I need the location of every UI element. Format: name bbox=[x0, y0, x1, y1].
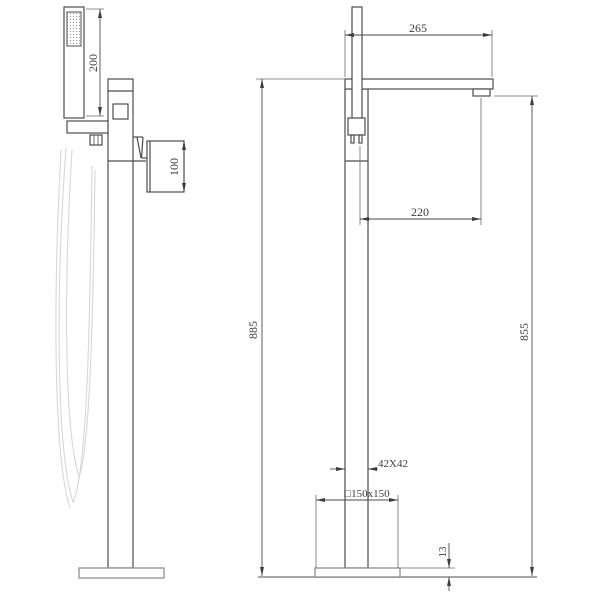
handle-mount-notch-right bbox=[142, 137, 144, 158]
spout-outlet bbox=[473, 89, 490, 96]
base-plate-front bbox=[79, 568, 164, 578]
hose-outer-loop bbox=[59, 148, 92, 502]
dim-shower-length: 200 bbox=[86, 9, 104, 116]
spray-face bbox=[67, 12, 81, 46]
front-view: 200 100 bbox=[56, 7, 184, 578]
hand-shower-side bbox=[352, 7, 362, 120]
hand-shower bbox=[64, 7, 84, 118]
dim-post-section: 42X42 bbox=[330, 458, 408, 470]
dim-outlet-height: 855 bbox=[494, 96, 538, 576]
dim-label-100: 100 bbox=[167, 158, 181, 176]
dim-outlet-offset: 220 bbox=[360, 98, 481, 225]
dim-label-200: 200 bbox=[86, 54, 100, 72]
shower-holder bbox=[67, 121, 108, 145]
dim-label-855: 855 bbox=[517, 323, 531, 341]
side-view: 265 220 885 855 42X42 bbox=[246, 7, 538, 591]
technical-drawing: 200 100 bbox=[0, 0, 600, 600]
column-body bbox=[108, 79, 133, 568]
dim-base-thickness: 13 bbox=[400, 543, 455, 591]
dim-label-150x150: □150x150 bbox=[344, 488, 390, 500]
dim-label-13: 13 bbox=[437, 546, 449, 558]
dim-label-265: 265 bbox=[409, 21, 427, 35]
bracket-body bbox=[348, 118, 365, 135]
dim-label-220: 220 bbox=[411, 205, 429, 219]
holder-ledge bbox=[67, 121, 108, 133]
hand-shower-bar bbox=[352, 7, 362, 120]
dim-label-885: 885 bbox=[246, 321, 260, 339]
dim-spout-reach: 265 bbox=[345, 21, 492, 77]
base-plate-side bbox=[315, 568, 400, 577]
hose-inner-loop bbox=[67, 150, 95, 477]
dim-label-42x42: 42X42 bbox=[378, 458, 408, 470]
technical-drawing-page: 200 100 bbox=[0, 0, 600, 600]
handle-mount-notch-left bbox=[137, 137, 141, 158]
dim-overall-height: 885 bbox=[246, 79, 345, 576]
shower-hose bbox=[56, 148, 95, 508]
spout-arm bbox=[345, 79, 493, 89]
holder-clip bbox=[90, 135, 102, 145]
